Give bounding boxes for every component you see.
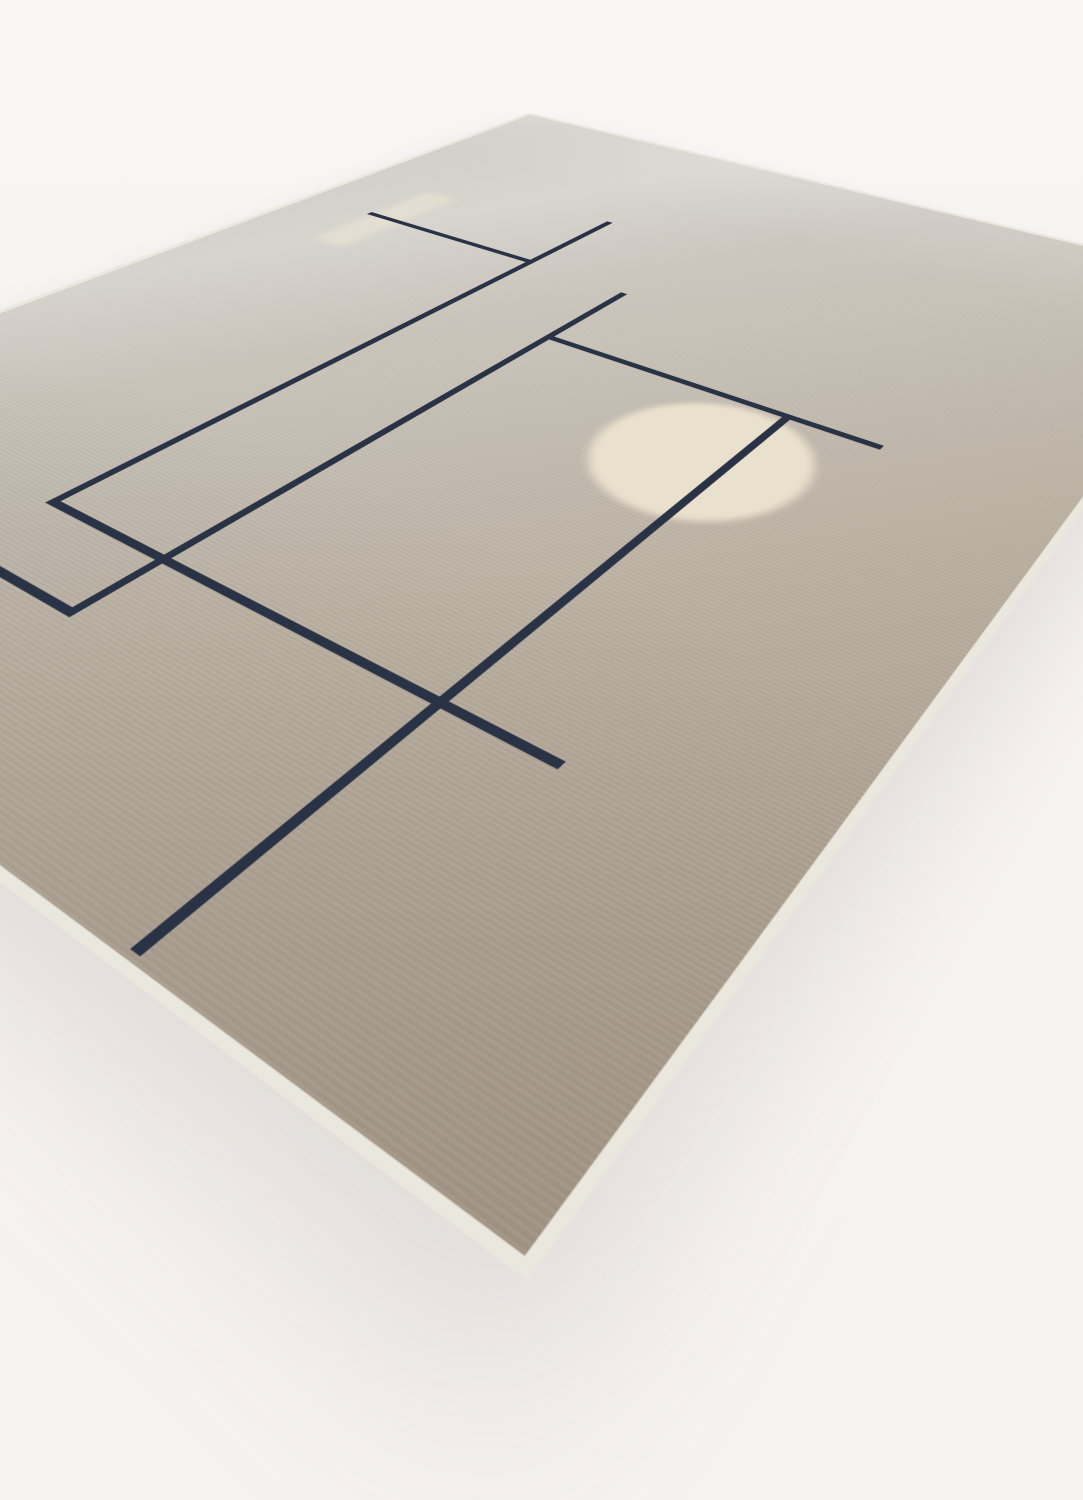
studio-backdrop: [0, 0, 1083, 1500]
rug: [0, 115, 1083, 1256]
rug-sheen-highlight: [0, 115, 1083, 1256]
